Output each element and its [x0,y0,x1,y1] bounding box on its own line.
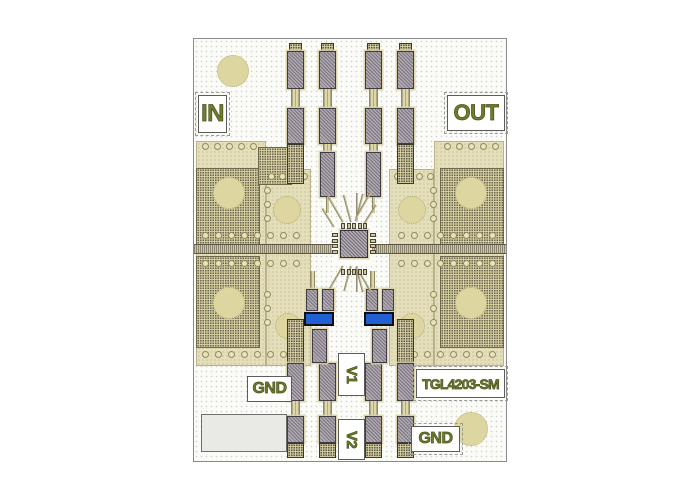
ic-pin-pad [358,223,362,229]
ic-pin-pad [347,269,351,275]
rf-trace [194,244,334,254]
smt-pad [365,416,382,443]
ic-pin-pad [363,269,367,275]
via [424,260,431,267]
trace [323,89,332,108]
via [264,187,271,194]
via [430,201,437,208]
smt-pad [312,329,327,363]
smt-pad [367,43,380,51]
capacitor[interactable] [304,312,334,326]
thermal-pad [397,319,414,363]
via [416,173,423,180]
via [264,215,271,222]
smt-pad [319,108,336,144]
ic-pin-pad [341,269,345,275]
via [254,232,261,239]
via [450,232,457,239]
via [476,260,483,267]
trace [310,271,315,289]
smt-pad [399,43,412,51]
via [456,143,463,150]
label-v2: V2 [338,419,365,460]
trace [291,89,300,108]
pad-circle [213,287,245,319]
pcb-board: IN OUT GND GND V1 V2 TGL4203-SM [193,38,507,462]
label-in: IN [198,95,227,133]
blank-silkscreen-label [201,414,287,452]
via [228,260,235,267]
via [202,351,209,358]
ic-pin-pad [370,250,376,254]
via [398,232,405,239]
via [430,319,437,326]
via [215,260,222,267]
via [280,232,287,239]
thermal-pad [319,443,336,458]
thermal-pad [287,319,304,363]
ic-pin-pad [370,239,376,243]
smt-pad [319,51,336,89]
smt-pad [397,51,414,89]
via [226,143,233,150]
via [463,351,470,358]
via [241,260,248,267]
smt-pad [319,363,336,401]
ic-pin-pad [332,233,338,237]
pad-circle [398,196,426,224]
via [427,173,434,180]
via [430,291,437,298]
via [489,232,496,239]
thermal-pad [287,144,304,184]
label-gnd-bottom-right: GND [411,426,460,452]
bond-trace [343,195,352,223]
trace [291,401,300,416]
label-v1: V1 [338,353,365,396]
ic-pin-pad [332,244,338,248]
trace [401,401,410,416]
via [411,260,418,267]
smt-pad [321,43,334,51]
via [463,232,470,239]
smt-pad [306,289,318,311]
via [241,351,248,358]
smt-pad [320,152,335,197]
via [293,232,300,239]
trace [323,144,332,152]
via [202,232,209,239]
trace [369,401,378,416]
via [268,173,275,180]
smt-pad [322,289,334,311]
trace [369,144,378,152]
label-in-text: IN [201,100,224,128]
thermal-pad [397,144,414,184]
smt-pad [397,108,414,144]
label-v2-text: V2 [343,431,360,448]
via [430,187,437,194]
via [437,351,444,358]
smt-pad [287,416,304,443]
via [476,232,483,239]
trace [401,89,410,108]
via [267,260,274,267]
via [398,260,405,267]
ic-pin-pad [332,239,338,243]
smt-pad [365,363,382,401]
via [463,260,470,267]
via [228,232,235,239]
via [202,260,209,267]
ic-pin-pad [352,223,356,229]
pad-circle [213,177,245,209]
smt-pad [287,51,304,89]
ic-pin-pad [370,244,376,248]
ic-pin-pad [352,269,356,275]
ic-pin-pad [358,269,362,275]
via [254,351,261,358]
smt-pad [365,108,382,144]
via [228,351,235,358]
label-gnd-left: GND [247,376,292,402]
via [430,305,437,312]
via [411,232,418,239]
via [280,260,287,267]
via [264,319,271,326]
ic-pin-pad [370,233,376,237]
pad-circle [455,177,487,209]
via [450,351,457,358]
ic-pin-pad [347,223,351,229]
via [264,291,271,298]
smt-pad [382,289,394,311]
via [238,143,245,150]
ic-pin-pad [332,250,338,254]
thermal-pad [365,443,382,458]
ic-pin-pad [363,223,367,229]
via [492,143,499,150]
smt-pad [366,289,378,311]
label-out: OUT [447,95,505,131]
trace [369,89,378,108]
pad-circle [455,287,487,319]
via [437,260,444,267]
via [489,260,496,267]
via [424,232,431,239]
smt-pad [289,43,302,51]
smt-pad [366,152,381,197]
via [430,215,437,222]
via [254,260,261,267]
via [241,232,248,239]
pad-circle [273,196,301,224]
label-out-text: OUT [454,100,499,126]
via [450,260,457,267]
via [280,351,287,358]
via [267,351,274,358]
label-gnd-bottom-right-text: GND [418,430,452,448]
via [264,305,271,312]
via [489,351,496,358]
ic-pin-pad [341,223,345,229]
label-part-number: TGL4203-SM [416,369,505,398]
via [250,143,257,150]
via [267,232,274,239]
smt-pad [319,416,336,443]
via [424,351,431,358]
label-gnd-left-text: GND [252,380,286,398]
label-part-number-text: TGL4203-SM [422,376,499,392]
via [444,143,451,150]
via [214,143,221,150]
smt-pad [372,329,387,363]
thermal-pad [287,443,304,458]
via [264,201,271,208]
via [279,173,286,180]
smt-pad [287,108,304,144]
rf-trace [370,244,506,254]
smt-pad [397,363,414,401]
smt-pad [365,51,382,89]
via [468,143,475,150]
ic-center-pad[interactable] [340,230,368,258]
trace [370,271,375,289]
via [202,143,209,150]
capacitor[interactable] [364,312,394,326]
via [476,351,483,358]
via [215,232,222,239]
trace [323,401,332,416]
via [437,232,444,239]
via [215,351,222,358]
mounting-pad [217,55,249,87]
pcb-layout-screenshot: IN OUT GND GND V1 V2 TGL4203-SM [0,0,700,500]
label-v1-text: V1 [343,366,360,383]
via [480,143,487,150]
via [293,260,300,267]
